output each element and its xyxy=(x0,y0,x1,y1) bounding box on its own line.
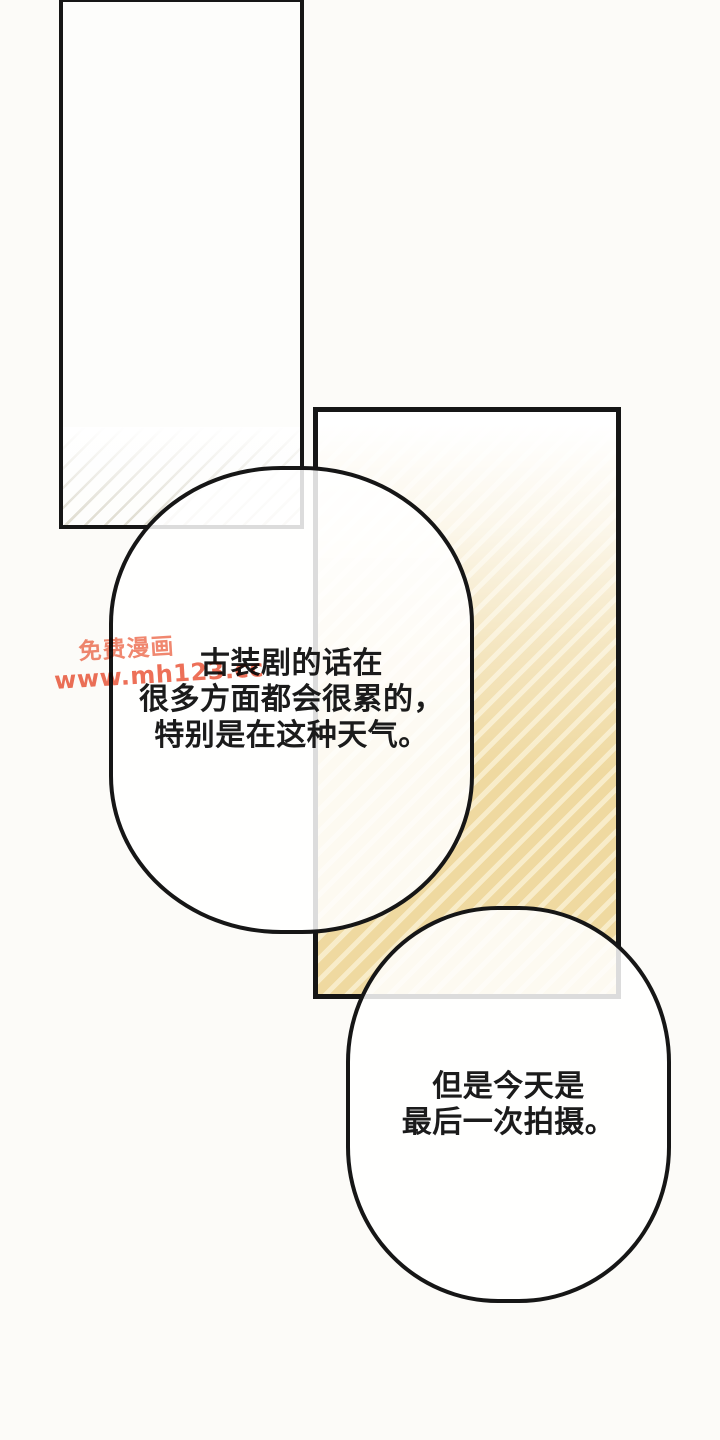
panel-top-left xyxy=(59,0,304,529)
comic-page: 古装剧的话在 很多方面都会很累的， 特别是在这种天气。 但是今天是 最后一次拍摄… xyxy=(0,0,720,1440)
speech-bubble-1: 古装剧的话在 很多方面都会很累的， 特别是在这种天气。 xyxy=(109,466,474,934)
bubble-2-line-1: 但是今天是 xyxy=(402,1069,616,1105)
bubble-1-line-2: 很多方面都会很累的， xyxy=(139,682,444,718)
speech-bubble-2-text: 但是今天是 最后一次拍摄。 xyxy=(402,1069,616,1141)
bubble-1-line-1: 古装剧的话在 xyxy=(139,646,444,682)
speech-bubble-1-text: 古装剧的话在 很多方面都会很累的， 特别是在这种天气。 xyxy=(139,646,444,754)
bubble-1-line-3: 特别是在这种天气。 xyxy=(139,718,444,754)
speech-bubble-2: 但是今天是 最后一次拍摄。 xyxy=(346,906,671,1303)
bubble-2-line-2: 最后一次拍摄。 xyxy=(402,1105,616,1141)
